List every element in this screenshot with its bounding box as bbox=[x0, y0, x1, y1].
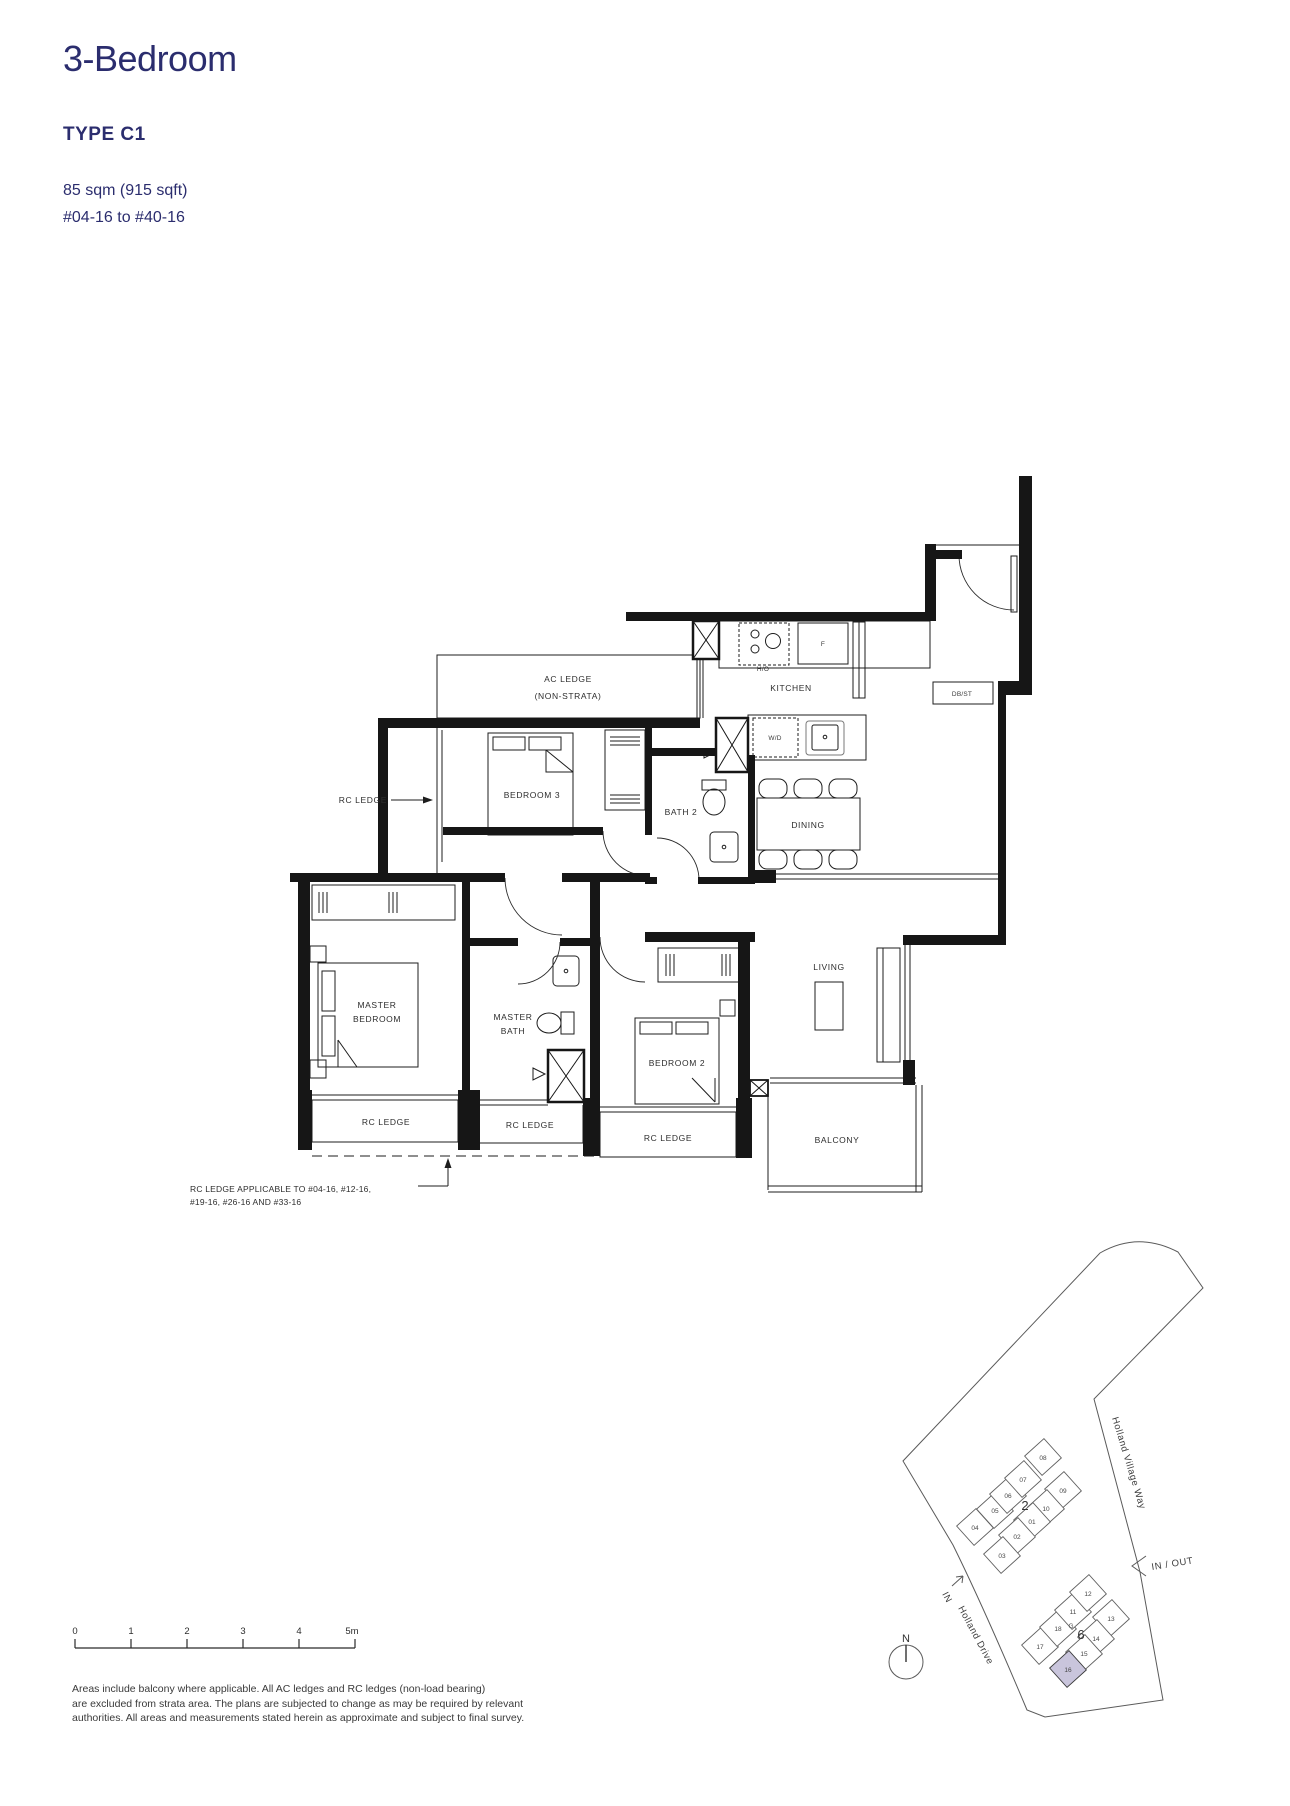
road-holland-drive: Holland Drive bbox=[955, 1604, 995, 1666]
rc-note-line2: #19-16, #26-16 AND #33-16 bbox=[190, 1197, 301, 1207]
scale-bar-labels: 0 1 2 3 4 5m bbox=[72, 1626, 358, 1637]
disclaimer-line1: Areas include balcony where applicable. … bbox=[72, 1682, 632, 1697]
unit-06: 06 bbox=[1004, 1493, 1012, 1500]
rc-ledge-label-1: RC LEDGE bbox=[362, 1117, 410, 1127]
unit-16: 16 bbox=[1064, 1667, 1072, 1674]
rc-ledge-label-2: RC LEDGE bbox=[506, 1120, 554, 1130]
site-cluster-6 bbox=[1022, 1575, 1130, 1688]
scale-tick-5: 5m bbox=[345, 1626, 358, 1637]
bath2-door-swing bbox=[657, 838, 699, 880]
unit-13: 13 bbox=[1107, 1616, 1115, 1623]
site-cluster-2 bbox=[957, 1439, 1082, 1574]
header: 3-Bedroom TYPE C1 85 sqm (915 sqft) #04-… bbox=[63, 38, 237, 227]
floorplan-page: 3-Bedroom TYPE C1 85 sqm (915 sqft) #04-… bbox=[0, 0, 1290, 1806]
unit-09: 09 bbox=[1059, 1488, 1067, 1495]
disclaimer-line2: are excluded from strata area. The plans… bbox=[72, 1697, 632, 1712]
unit-range-text: #04-16 to #40-16 bbox=[63, 209, 237, 227]
balcony-label: BALCONY bbox=[815, 1135, 860, 1145]
unit-15: 15 bbox=[1080, 1651, 1088, 1658]
unit-17: 17 bbox=[1036, 1644, 1044, 1651]
bath2-label: BATH 2 bbox=[665, 807, 698, 817]
plan-walls bbox=[290, 476, 1032, 1158]
in-out-label: IN / OUT bbox=[1151, 1555, 1194, 1572]
scale-tick-2: 2 bbox=[184, 1626, 189, 1637]
rc-ledge-label-3: RC LEDGE bbox=[644, 1133, 692, 1143]
unit-12: 12 bbox=[1084, 1591, 1092, 1598]
bedroom3-label: BEDROOM 3 bbox=[504, 790, 560, 800]
unit-03: 03 bbox=[998, 1553, 1006, 1560]
unit-07: 07 bbox=[1019, 1477, 1027, 1484]
unit-01: 01 bbox=[1028, 1519, 1036, 1526]
bedroom3-wardrobe bbox=[605, 730, 645, 810]
area-text: 85 sqm (915 sqft) bbox=[63, 182, 237, 200]
master-label-1: MASTER bbox=[357, 1000, 396, 1010]
scale-tick-1: 1 bbox=[128, 1626, 133, 1637]
washer-dryer-label: W/D bbox=[768, 735, 781, 742]
scale-bar bbox=[75, 1639, 355, 1648]
unit-14: 14 bbox=[1092, 1636, 1100, 1643]
ac-ledge-label-1: AC LEDGE bbox=[544, 674, 592, 684]
entry-door-leaf bbox=[1011, 556, 1017, 612]
rc-note-line1: RC LEDGE APPLICABLE TO #04-16, #12-16, bbox=[190, 1184, 371, 1194]
tv-console bbox=[815, 982, 843, 1030]
road-holland-village-way: Holland Village Way bbox=[1109, 1416, 1148, 1511]
in-arrow-icon bbox=[952, 1576, 963, 1586]
type-label: TYPE C1 bbox=[63, 124, 237, 146]
ac-ledge-label-2: (NON-STRATA) bbox=[535, 691, 602, 701]
masterbath-label-2: BATH bbox=[501, 1026, 525, 1036]
disclaimer-line3: authorities. All areas and measurements … bbox=[72, 1711, 632, 1726]
scale-tick-0: 0 bbox=[72, 1626, 77, 1637]
unit-04: 04 bbox=[971, 1525, 979, 1532]
db-st-label: DB/ST bbox=[952, 691, 972, 698]
bedroom2-label: BEDROOM 2 bbox=[649, 1058, 705, 1068]
bedroom2-door-swing bbox=[600, 937, 645, 982]
disclaimer: Areas include balcony where applicable. … bbox=[72, 1682, 632, 1726]
hob-outline bbox=[739, 623, 789, 665]
north-indicator: N bbox=[889, 1633, 923, 1679]
master-label-2: BEDROOM bbox=[353, 1014, 401, 1024]
floorplan-drawing: AC LEDGE (NON-STRATA) KITCHEN H/O F W/D … bbox=[0, 0, 1290, 1806]
guard-house-label: G bbox=[1068, 1623, 1073, 1630]
in-out-arrow bbox=[1132, 1556, 1146, 1576]
unit-05: 05 bbox=[991, 1508, 999, 1515]
bedroom3-door-swing bbox=[603, 831, 648, 876]
entry-door-swing bbox=[959, 555, 1014, 610]
fridge-label: F bbox=[821, 641, 825, 648]
in-label: IN bbox=[939, 1590, 954, 1605]
unit-10: 10 bbox=[1042, 1506, 1050, 1513]
scale-tick-4: 4 bbox=[296, 1626, 301, 1637]
master-wardrobe bbox=[312, 885, 455, 920]
unit-18: 18 bbox=[1054, 1626, 1062, 1633]
living-label: LIVING bbox=[813, 962, 844, 972]
hob-label: H/O bbox=[757, 666, 769, 673]
unit-08: 08 bbox=[1039, 1455, 1047, 1462]
plan-thin-lines bbox=[310, 545, 1019, 1192]
dining-label: DINING bbox=[791, 820, 824, 830]
unit-02: 02 bbox=[1013, 1534, 1021, 1541]
cluster-6-label: 6 bbox=[1077, 1627, 1084, 1642]
ac-ledge-outline bbox=[437, 655, 700, 718]
rc-ledge-arrow-label: RC LEDGE bbox=[339, 795, 387, 805]
masterbath-label-1: MASTER bbox=[493, 1012, 532, 1022]
bedroom3-bed bbox=[488, 733, 573, 835]
scale-tick-3: 3 bbox=[240, 1626, 245, 1637]
master-door-swing bbox=[505, 878, 562, 935]
cluster-2-label: 2 bbox=[1021, 1498, 1028, 1513]
kitchen-label: KITCHEN bbox=[770, 683, 812, 693]
north-label: N bbox=[902, 1633, 910, 1645]
sofa bbox=[877, 948, 900, 1062]
page-title: 3-Bedroom bbox=[63, 38, 237, 80]
site-plan: IN / OUT Holland Village Way Holland Dri… bbox=[889, 1242, 1203, 1717]
unit-11: 11 bbox=[1070, 1609, 1077, 1616]
masterbath-door-swing bbox=[518, 942, 560, 984]
